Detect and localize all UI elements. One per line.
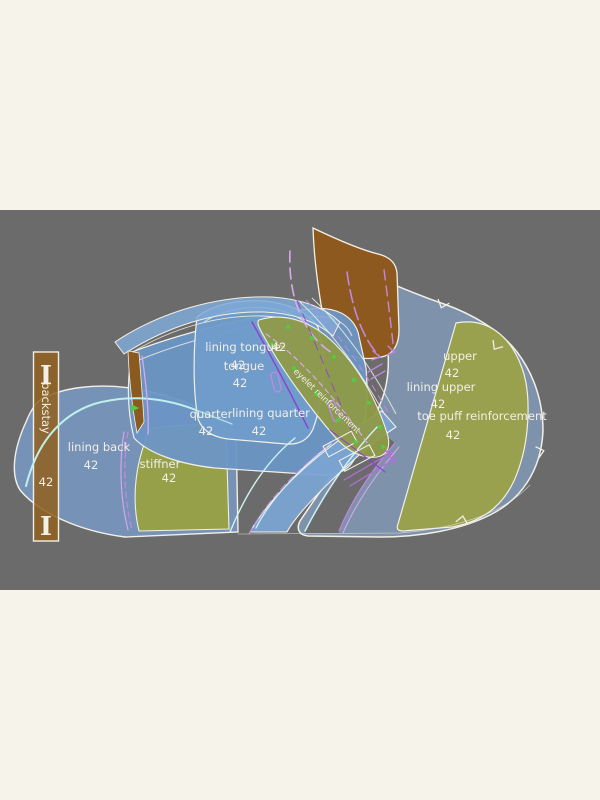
size-lining-back: 42 xyxy=(84,458,99,472)
backstay-bottom-mark: I xyxy=(40,512,52,542)
label-tongue: tongue xyxy=(224,359,265,373)
label-lining-upper: lining upper xyxy=(407,380,476,394)
label-lining-back: lining back xyxy=(68,440,131,454)
label-upper: upper xyxy=(443,349,477,363)
label-quarter: quarter xyxy=(190,407,233,421)
size-backstay: 42 xyxy=(39,475,54,489)
size-stiffner: 42 xyxy=(162,471,177,485)
label-toe-puff: toe puff reinforcement xyxy=(417,409,547,423)
backstay-top-mark: I xyxy=(40,361,52,391)
size-lining-quarter: 42 xyxy=(252,424,267,438)
size-stray: 42 xyxy=(272,340,287,354)
label-lining-tongue: lining tongue xyxy=(205,340,281,354)
label-lining-quarter: lining quarter xyxy=(232,406,310,420)
size-quarter: 42 xyxy=(199,424,214,438)
shoe-pattern-board: lining back 42 stiffner 42 quarter 42 li… xyxy=(0,0,600,800)
size-upper: 42 xyxy=(445,366,460,380)
pattern-editor-canvas: lining back 42 stiffner 42 quarter 42 li… xyxy=(0,0,600,800)
size-tongue: 42 xyxy=(233,376,248,390)
label-stiffner: stiffner xyxy=(140,457,181,471)
size-toe-puff: 42 xyxy=(446,428,461,442)
